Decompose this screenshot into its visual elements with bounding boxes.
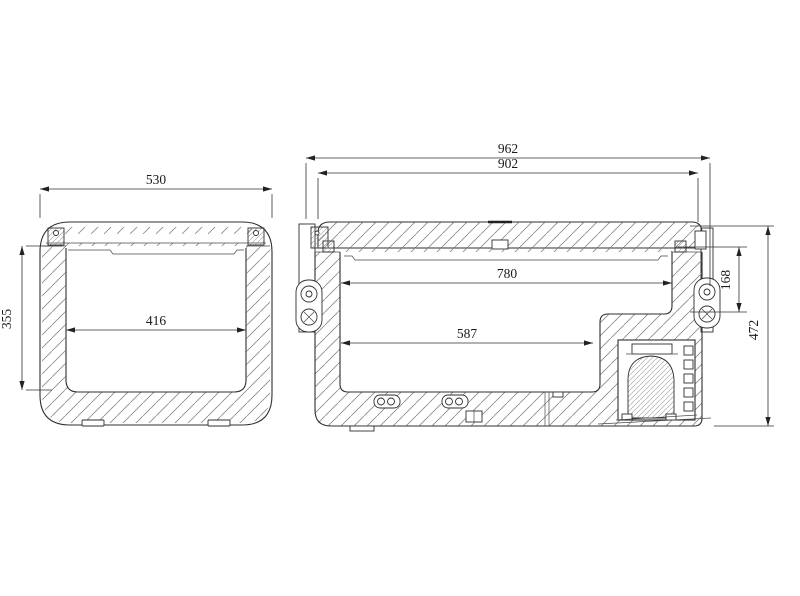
- front-lid-hatch-strip: [60, 227, 252, 234]
- front-foot-left: [82, 420, 104, 426]
- handle-bracket-right: [694, 278, 720, 328]
- drain-detail: [466, 411, 482, 422]
- side-lid-latch-recess: [492, 240, 508, 249]
- technical-drawing: 530 416 355: [0, 0, 800, 596]
- dim-text-962: 962: [498, 141, 518, 156]
- dim-text-780: 780: [497, 266, 518, 281]
- front-foot-right: [208, 420, 230, 426]
- compressor-top-assembly: [632, 344, 672, 354]
- dim-text-472: 472: [746, 320, 761, 340]
- drawing-sheet: 530 416 355: [0, 0, 800, 596]
- handle-bracket-left: [296, 280, 322, 332]
- side-lid: [318, 222, 702, 248]
- dim-text-355: 355: [0, 309, 14, 330]
- dim-text-530: 530: [146, 172, 167, 187]
- compressor-dome: [628, 356, 674, 418]
- dim-text-416: 416: [146, 313, 167, 328]
- side-foot-tab: [350, 426, 374, 431]
- side-lid-keeper-right: [695, 231, 706, 249]
- floor-screw-boss-1: [374, 395, 400, 408]
- dim-text-902: 902: [498, 156, 518, 171]
- side-latch-left: [323, 241, 334, 252]
- dim-text-168: 168: [718, 270, 733, 291]
- side-latch-right: [675, 241, 686, 252]
- front-left-hinge: [48, 228, 64, 245]
- dim-text-587: 587: [457, 326, 478, 341]
- front-right-hinge: [248, 228, 264, 245]
- floor-screw-boss-2: [442, 395, 468, 408]
